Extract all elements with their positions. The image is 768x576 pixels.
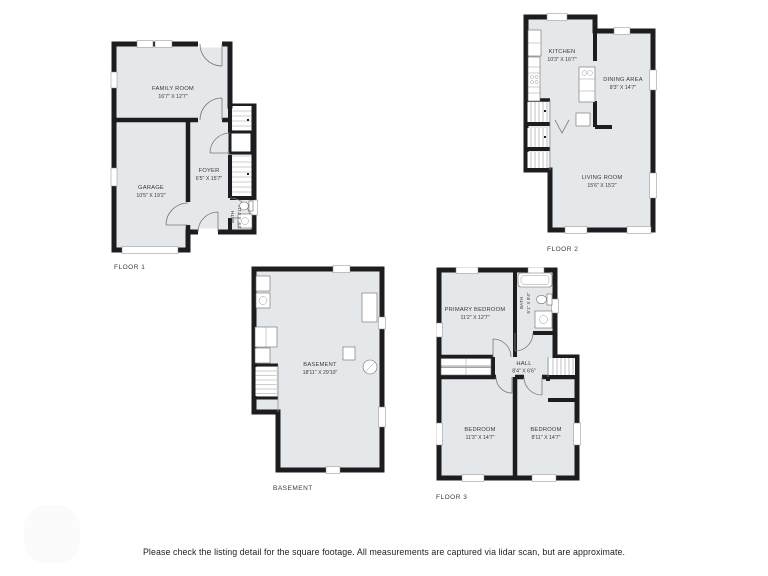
floor2-stairs-icon (528, 102, 549, 168)
garage-door-icon (122, 247, 178, 254)
room-label-living-room: LIVING ROOM (582, 175, 623, 181)
room-label-foyer: FOYER (199, 168, 220, 174)
floor1-stairs-icon (230, 106, 252, 196)
room-label-hall: HALL (516, 361, 532, 367)
footer-disclaimer: Please check the listing detail for the … (0, 547, 768, 557)
room-label-family-room: FAMILY ROOM (152, 86, 194, 92)
room-label-bath-1: BATH (230, 211, 235, 223)
floor3-plan: PRIMARY BEDROOM 11'2" X 12'7" BATH 5'1" … (436, 267, 581, 482)
room-dims-dining-area: 8'3" X 14'7" (610, 85, 637, 91)
dryer-icon (256, 276, 270, 291)
room-dims-foyer: 6'5" X 15'7" (196, 176, 223, 182)
floor1-plan: FAMILY ROOM 16'7" X 12'7" GARAGE 10'5" X… (110, 40, 260, 255)
room-dims-primary-bedroom: 11'2" X 12'7" (461, 315, 490, 321)
room-label-bath-3: BATH (519, 297, 524, 309)
room-dims-bath-3: 5'1" X 9'4" (526, 292, 531, 313)
basement-label: BASEMENT (273, 485, 313, 492)
room-dims-hall: 8'4" X 6'6" (512, 369, 536, 375)
kitchen-counter-icon (528, 57, 540, 101)
floorplan-canvas: FAMILY ROOM 16'7" X 12'7" GARAGE 10'5" X… (0, 0, 768, 576)
room-label-dining-area: DINING AREA (603, 77, 643, 83)
room-label-basement: BASEMENT (303, 362, 337, 368)
room-dims-family-room: 16'7" X 12'7" (158, 94, 187, 100)
basement-stairs-icon (256, 367, 277, 396)
toilet-icon (249, 201, 253, 211)
room-dims-bath-1: 3'9" X 4'11" (237, 205, 242, 228)
floor3-label: FLOOR 3 (436, 494, 467, 501)
bathtub-icon (518, 273, 552, 287)
room-label-bedroom-2: BEDROOM (530, 427, 561, 433)
basement-plan: BASEMENT 18'11" X 29'10" (250, 265, 387, 475)
freezer-icon (255, 348, 270, 363)
toilet-icon (547, 294, 552, 305)
room-dims-kitchen: 10'3" X 16'7" (547, 57, 576, 63)
support-post-icon (343, 347, 355, 360)
room-label-kitchen: KITCHEN (549, 49, 576, 55)
floor3-stairs-icon (548, 357, 575, 377)
room-dims-bedroom-1: 11'3" X 14'7" (466, 435, 495, 441)
room-dims-living-room: 15'6" X 15'2" (587, 183, 616, 189)
floor2-label: FLOOR 2 (547, 246, 578, 253)
egress-window-icon (362, 293, 377, 322)
sink-icon (535, 311, 552, 328)
room-dims-bedroom-2: 8'11" X 14'7" (532, 435, 561, 441)
room-dims-garage: 10'5" X 19'2" (136, 193, 165, 199)
room-dims-basement: 18'11" X 29'10" (303, 370, 338, 376)
floor2-plan: KITCHEN 10'3" X 16'7" DINING AREA 8'3" X… (522, 13, 658, 235)
washer-icon (256, 293, 270, 308)
room-label-garage: GARAGE (138, 185, 164, 191)
cabinet-icon (576, 113, 590, 126)
room-label-primary-bedroom: PRIMARY BEDROOM (445, 307, 506, 313)
room-label-bedroom-1: BEDROOM (464, 427, 495, 433)
floor1-label: FLOOR 1 (114, 264, 145, 271)
